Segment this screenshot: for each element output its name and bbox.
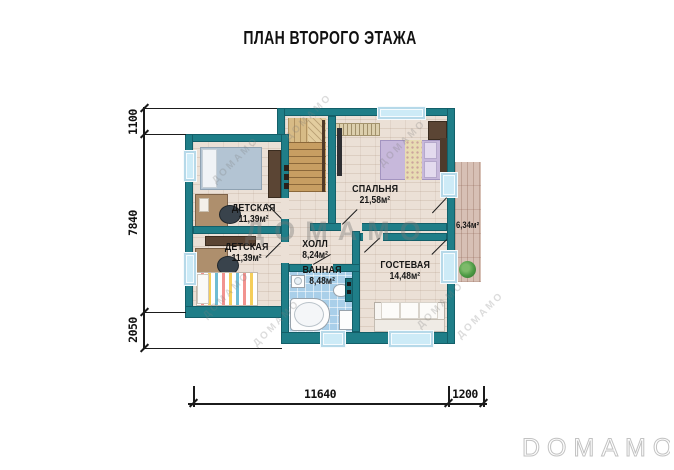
room-label-guest: ГОСТЕВАЯ 14,48м² (365, 259, 445, 283)
sofa-cushion-2 (400, 302, 419, 319)
wardrobe-nursery-top (268, 150, 281, 198)
pillow-nursery-bottom (197, 274, 209, 304)
dim-label-1200: 1200 (440, 387, 490, 401)
domamo-logo-text: DOMAMO (522, 434, 670, 462)
stairs-railing (322, 120, 325, 192)
window-nursery-bottom (183, 252, 197, 286)
window-guest (388, 330, 434, 348)
shelf-box-3 (284, 183, 289, 189)
dim-label-7840: 7840 (126, 193, 140, 253)
shelf-box-2 (284, 174, 289, 180)
watermark-center: ДОМАМО (245, 216, 431, 247)
balcony-door-bedroom (440, 172, 458, 198)
pillow-bedroom-2 (424, 161, 437, 178)
washing-machine (339, 310, 353, 330)
dim-label-11640: 11640 (280, 387, 360, 401)
watermark-diagonal: ДОМАМО (455, 290, 506, 341)
wall-bedroom-left (328, 116, 336, 230)
boiler-panel-2 (347, 290, 351, 294)
title-wrap: ПЛАН ВТОРОГО ЭТАЖА (160, 28, 500, 49)
sofa-cushion-1 (381, 302, 400, 319)
dim-ext-7840 (143, 312, 186, 313)
dim-label-2050: 2050 (126, 300, 140, 360)
room-label-bathroom: ВАННАЯ 8,48м² (282, 264, 362, 288)
room-label-bedroom: СПАЛЬНЯ 21,58м² (335, 183, 415, 207)
dim-ext-1100 (143, 134, 186, 135)
wall-leftwing-top (185, 134, 285, 142)
domamo-logo: DOMAMO (520, 430, 670, 466)
page-title: ПЛАН ВТОРОГО ЭТАЖА (243, 28, 416, 49)
shelf-box-1 (284, 165, 289, 171)
window-nursery-top (183, 150, 197, 182)
dim-ext-2050 (143, 348, 282, 349)
stairs-steps (288, 142, 326, 192)
tv-unit-bedroom (337, 128, 342, 176)
room-label-balcony: 6,34м² (448, 220, 488, 231)
plant-icon (459, 261, 476, 278)
window-bathroom (320, 330, 346, 348)
pillow-bedroom-1 (424, 142, 437, 159)
dim-line-bottom (188, 403, 487, 405)
dim-label-1100: 1100 (126, 92, 140, 152)
paper-nursery-top (199, 198, 209, 212)
dim-ext-top (143, 108, 277, 109)
